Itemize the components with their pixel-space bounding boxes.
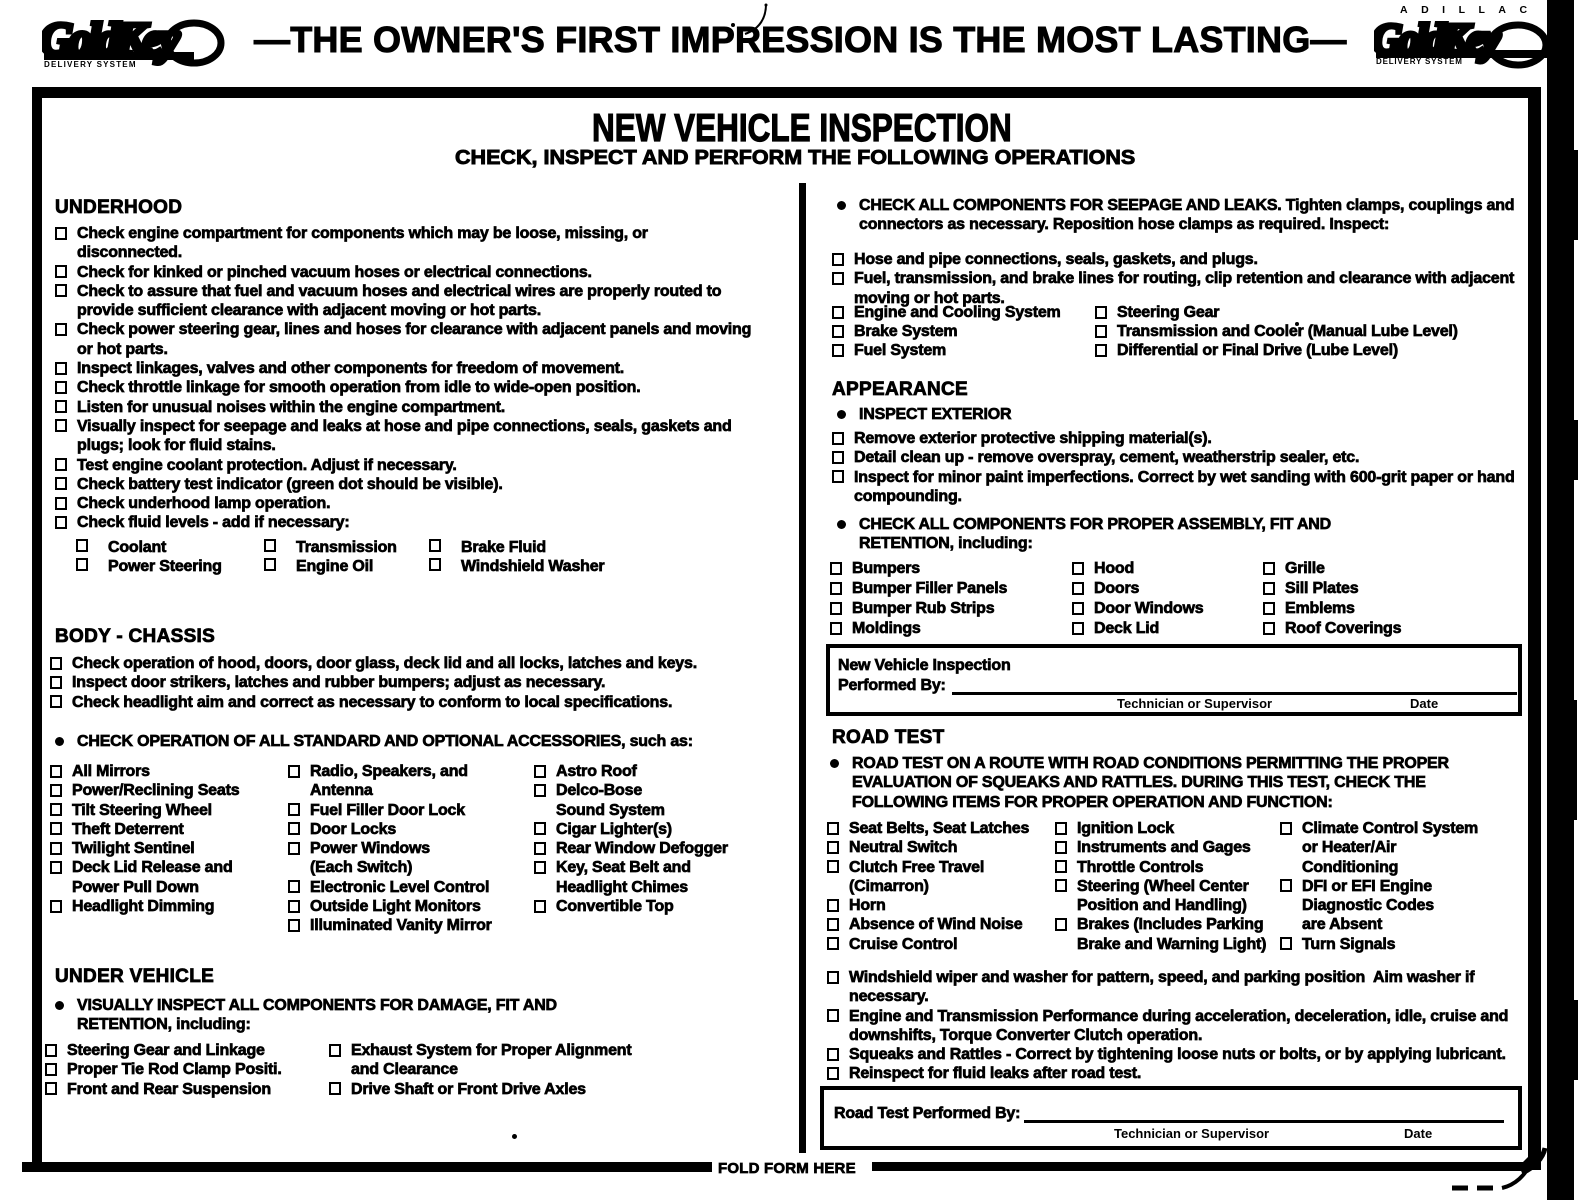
svg-text:DELIVERY SYSTEM: DELIVERY SYSTEM bbox=[1376, 57, 1463, 66]
svg-text:DELIVERY SYSTEM: DELIVERY SYSTEM bbox=[44, 60, 137, 69]
